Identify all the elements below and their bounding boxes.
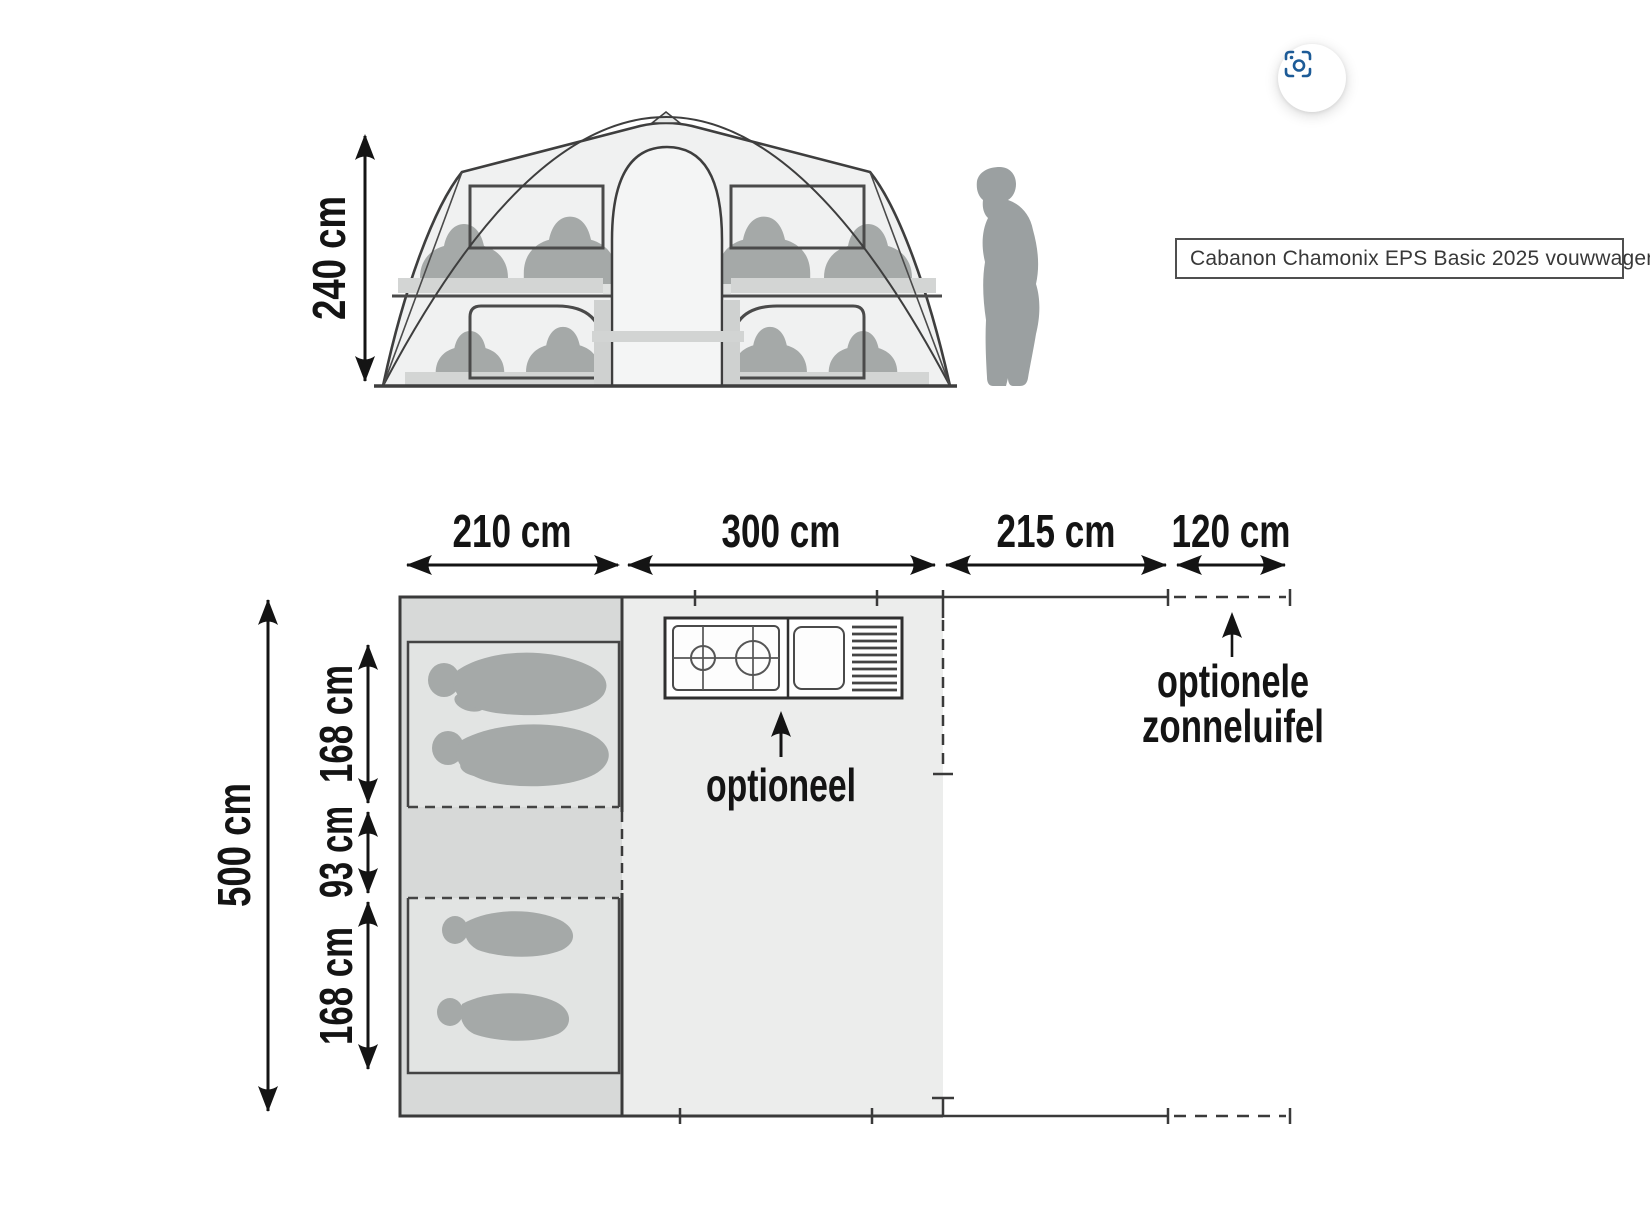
dimension-label-240: 240 cm	[303, 196, 355, 320]
image-caption-box: Cabanon Chamonix EPS Basic 2025 vouwwage…	[1175, 238, 1624, 279]
figure-head	[442, 916, 468, 944]
tent-door	[612, 147, 722, 386]
sink-basin	[794, 627, 844, 689]
dimension-label-168b: 168 cm	[310, 927, 362, 1045]
flash-dot	[1290, 56, 1294, 60]
dimension-label-300: 300 cm	[722, 505, 841, 557]
height-dimension: 240 cm	[303, 134, 375, 382]
arrowhead-up	[355, 134, 375, 160]
arrowhead-right	[910, 555, 936, 575]
dimension-label-120: 120 cm	[1172, 505, 1291, 557]
awning-label-line2: zonneluifel	[1142, 700, 1324, 752]
arrowhead-right	[1141, 555, 1167, 575]
arrowhead-up	[258, 599, 278, 625]
scale-person-silhouette	[977, 167, 1040, 386]
awning-annotation: optionele zonneluifel	[1142, 612, 1324, 752]
page: 240 cm	[0, 0, 1650, 1227]
arrowhead-left	[627, 555, 653, 575]
door-side-strip	[594, 300, 610, 386]
dimension-label-168a: 168 cm	[310, 665, 362, 783]
width-dimensions: 210 cm 300 cm 215 cm 120 cm	[406, 505, 1291, 575]
bunk-base	[731, 278, 936, 293]
lens-circle	[1294, 61, 1304, 71]
figure-body	[456, 724, 609, 786]
dimension-label-215: 215 cm	[997, 505, 1116, 557]
visual-search-camera-icon	[1278, 44, 1318, 84]
arrowhead-up	[1222, 612, 1242, 638]
bench-band	[592, 331, 744, 342]
arrowhead-left	[1176, 555, 1202, 575]
optioneel-label: optioneel	[706, 759, 856, 811]
dimension-label-93: 93 cm	[310, 806, 362, 898]
diagram-canvas: 240 cm	[0, 0, 1650, 1227]
kitchen-unit	[665, 618, 902, 698]
tent-elevation	[374, 112, 1039, 386]
arrowhead-up	[358, 901, 378, 927]
door-side-strip	[724, 300, 740, 386]
arrowhead-down	[358, 1044, 378, 1070]
viewfinder-corner	[1303, 52, 1310, 59]
viewfinder-corner	[1303, 69, 1310, 76]
arrowhead-down	[258, 1086, 278, 1112]
bunk-base	[398, 278, 603, 293]
dimension-label-500: 500 cm	[208, 783, 260, 907]
dimension-label-210: 210 cm	[453, 505, 572, 557]
image-caption-text: Cabanon Chamonix EPS Basic 2025 vouwwage…	[1190, 247, 1650, 271]
arrowhead-left	[406, 555, 432, 575]
arrowhead-down	[355, 356, 375, 382]
viewfinder-corner	[1286, 69, 1293, 76]
depth-dimensions: 500 cm 168 cm 93 cm 168 cm	[208, 599, 378, 1112]
arrowhead-right	[1260, 555, 1286, 575]
arrowhead-left	[945, 555, 971, 575]
visual-search-button[interactable]	[1278, 44, 1346, 112]
arrowhead-right	[594, 555, 620, 575]
figure-head	[437, 998, 463, 1026]
